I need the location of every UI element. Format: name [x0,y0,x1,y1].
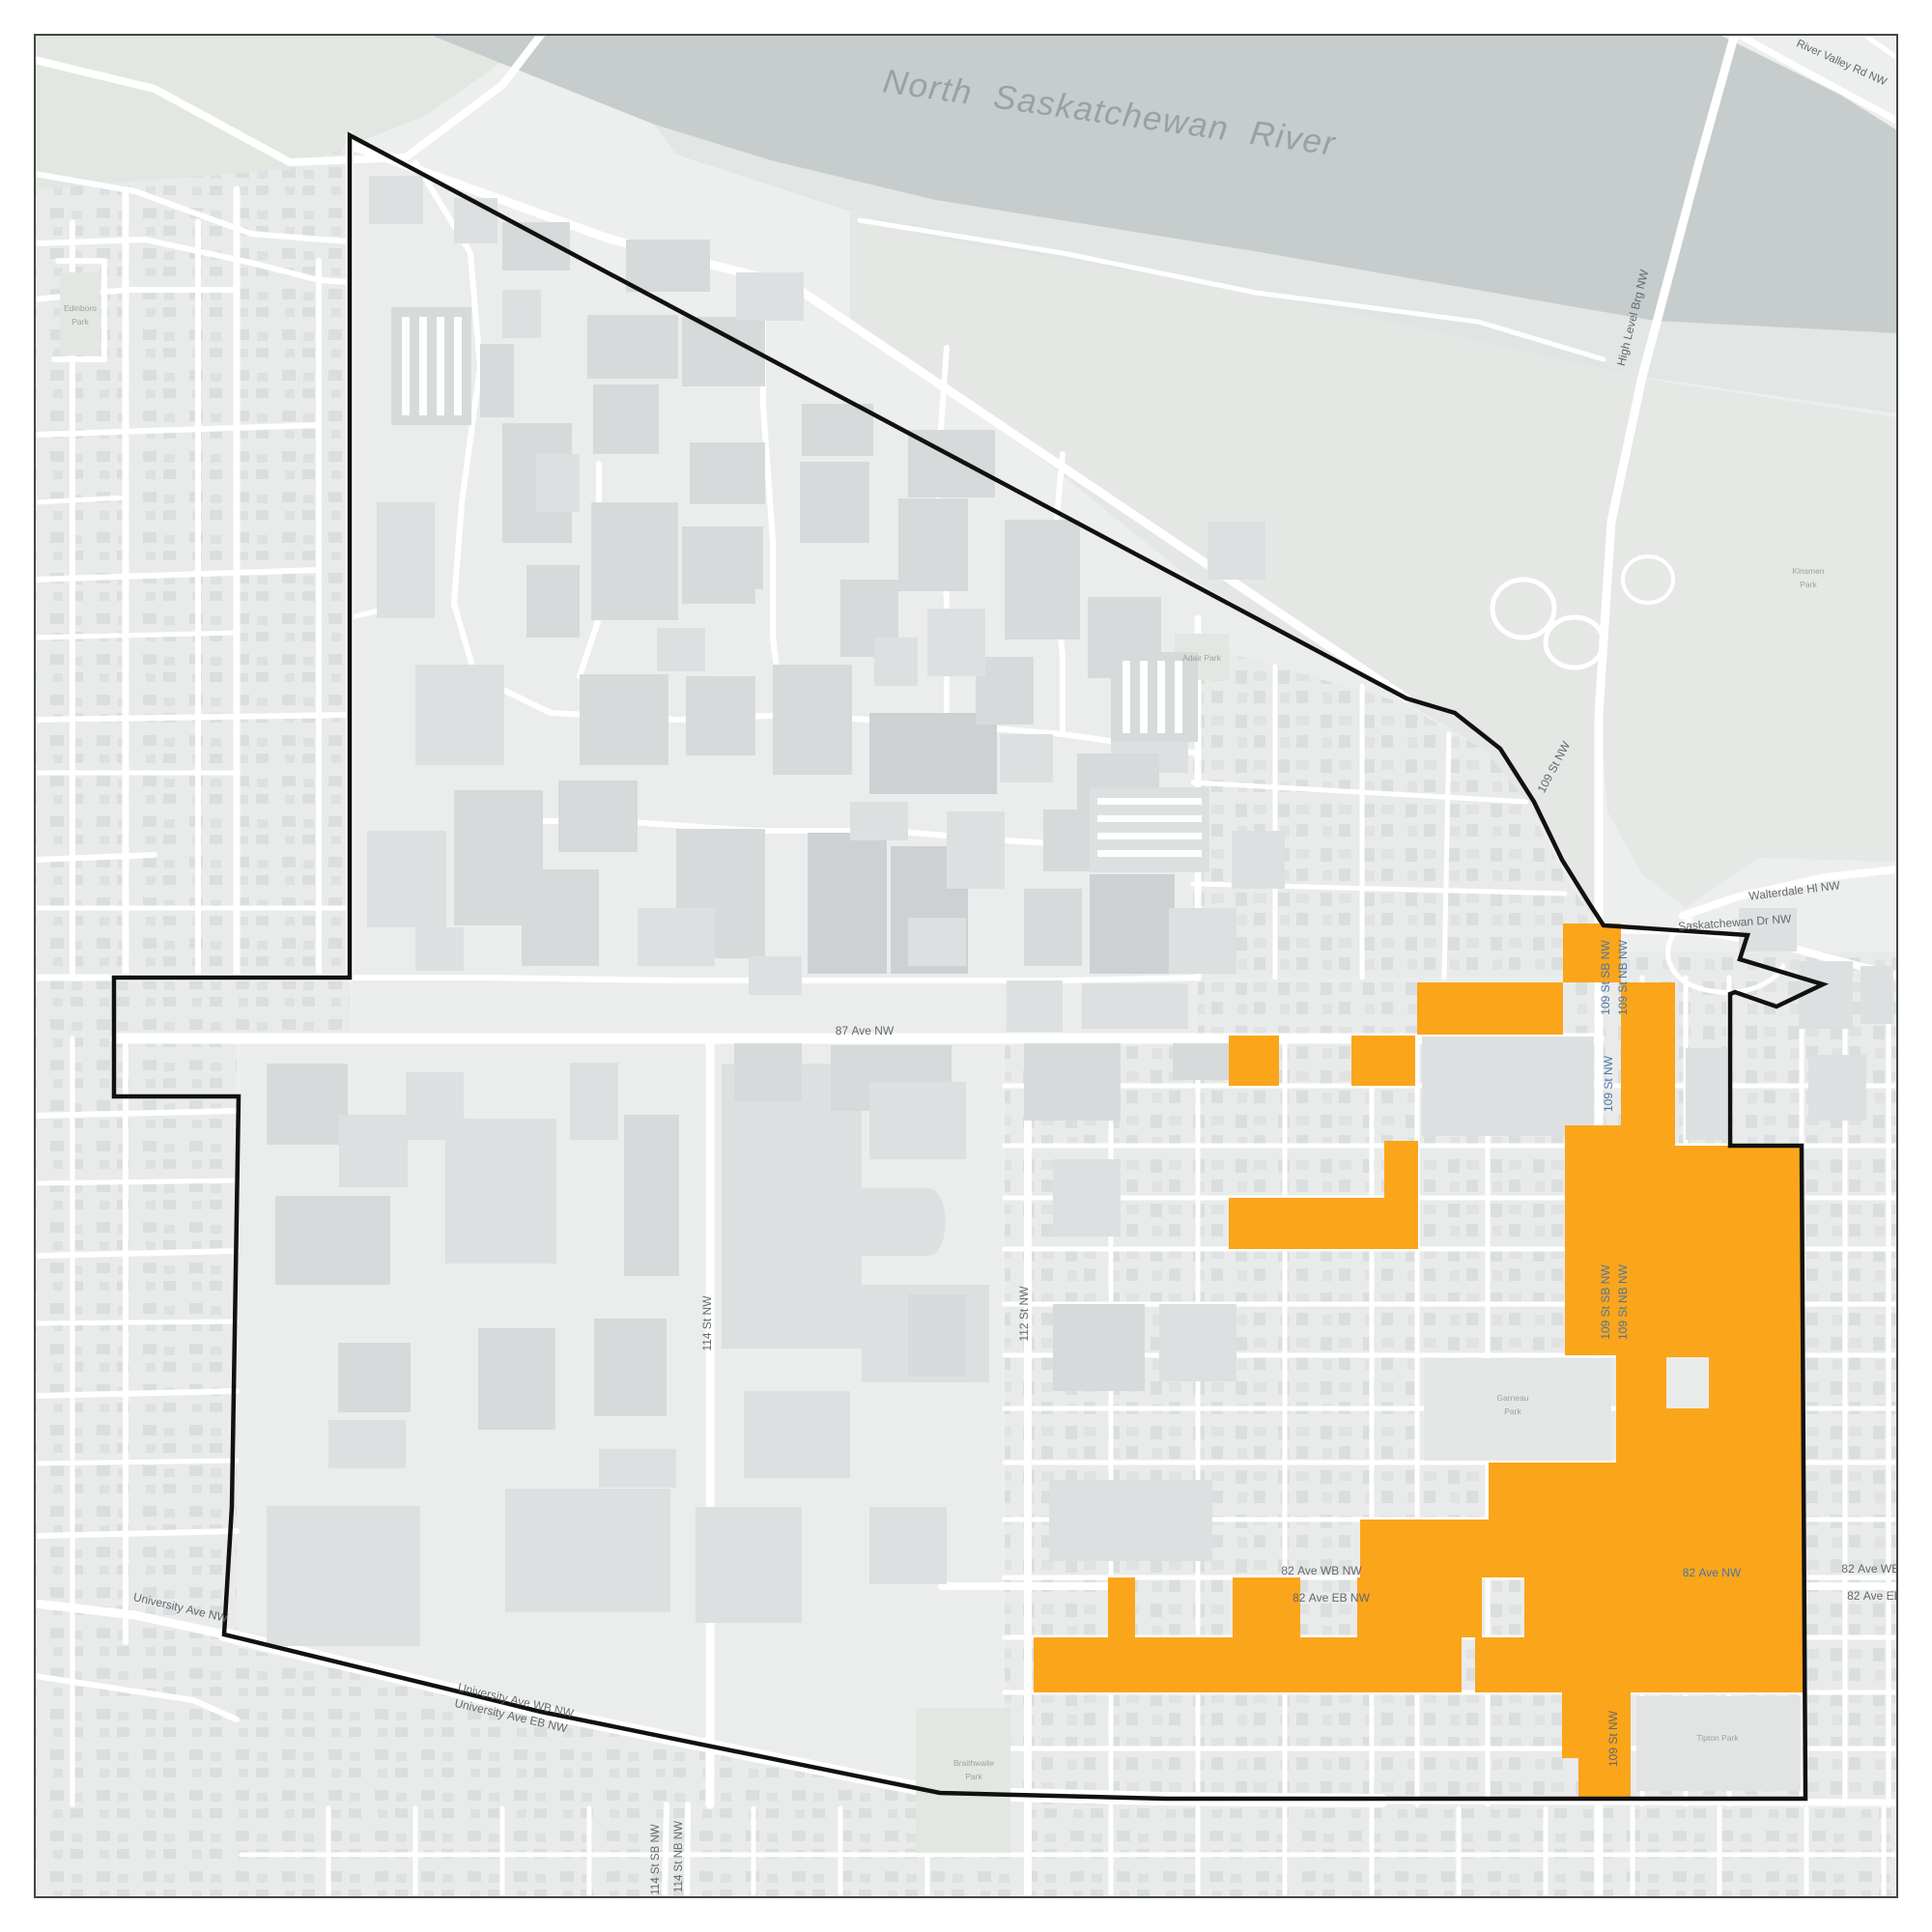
svg-text:82 Ave WB NW: 82 Ave WB NW [1281,1564,1362,1577]
svg-text:Tipton Park: Tipton Park [1696,1733,1739,1743]
svg-text:Park: Park [1504,1406,1521,1416]
svg-text:109 St NB NW: 109 St NB NW [1616,1264,1630,1340]
svg-text:114 St NW: 114 St NW [700,1295,714,1351]
svg-text:82 Ave NW: 82 Ave NW [1683,1566,1742,1579]
svg-text:Park: Park [1800,580,1817,589]
svg-text:Braithwaite: Braithwaite [953,1758,994,1768]
svg-text:Garneau: Garneau [1496,1393,1528,1403]
svg-text:Kinsmen: Kinsmen [1792,566,1824,576]
svg-text:114 St NB NW: 114 St NB NW [673,1821,685,1892]
svg-text:Park: Park [965,1772,982,1781]
svg-text:114 St SB NW: 114 St SB NW [650,1824,662,1894]
svg-text:109 St NW: 109 St NW [1602,1055,1615,1112]
svg-text:112 St NW: 112 St NW [1017,1286,1031,1342]
svg-text:Park: Park [71,317,89,327]
svg-text:87 Ave NW: 87 Ave NW [836,1024,895,1037]
svg-text:109 St SB NW: 109 St SB NW [1599,1264,1612,1340]
svg-text:109 St NB NW: 109 St NB NW [1616,939,1630,1015]
svg-text:109 St SB NW: 109 St SB NW [1599,940,1612,1015]
svg-text:Adair Park: Adair Park [1182,653,1221,663]
svg-text:109 St NW: 109 St NW [1606,1710,1620,1767]
svg-text:Edinboro: Edinboro [64,303,97,313]
svg-text:82 Ave EB NW: 82 Ave EB NW [1293,1591,1370,1605]
